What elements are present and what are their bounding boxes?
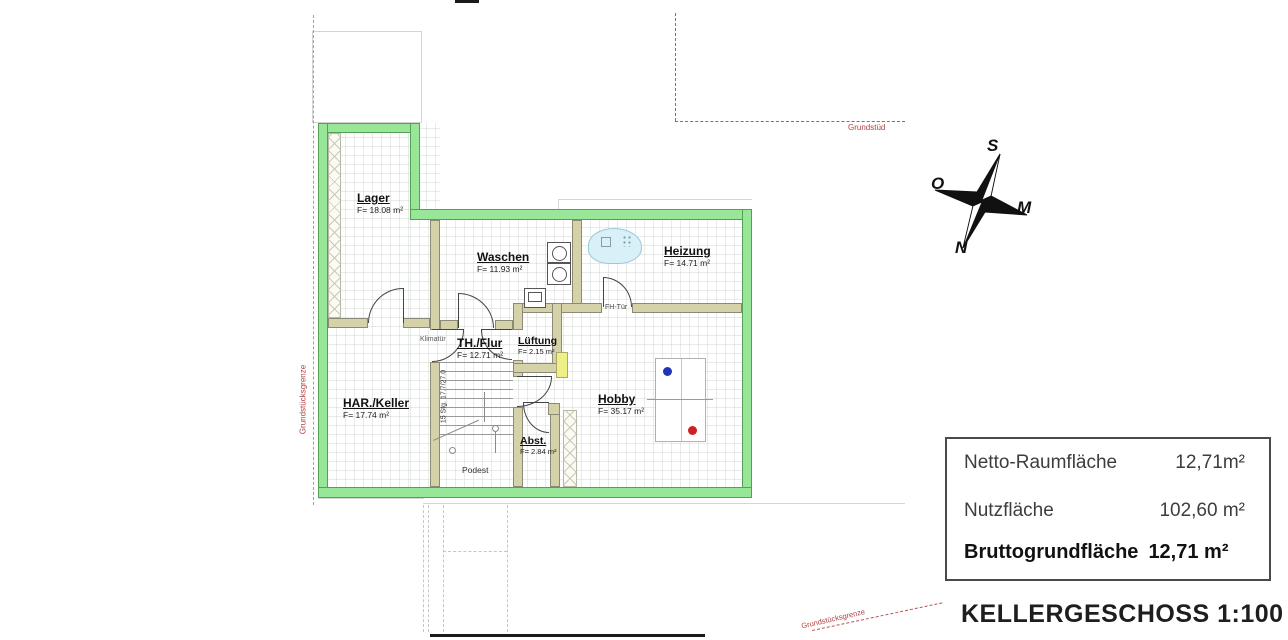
room-area: F= 17.74 m² [343, 410, 409, 420]
room-label-th-flur: TH./Flur F= 12.71 m² [457, 337, 503, 360]
wall-lueftung-bottom [513, 363, 562, 373]
room-label-har-keller: HAR./Keller F= 17.74 m² [343, 397, 409, 420]
room-area: F= 35.17 m² [598, 406, 644, 416]
boundary-label-topright: Grundstüd [848, 123, 885, 132]
podest-label: Podest [462, 465, 488, 475]
washing-machine-icon [547, 263, 571, 285]
compass-rose: S O M N [925, 140, 1045, 260]
outer-wall-step [410, 123, 420, 215]
room-area: F= 18.08 m² [357, 205, 403, 215]
room-name: TH./Flur [457, 337, 503, 350]
door-leaf-fh-tuer [603, 277, 604, 307]
property-boundary-topright-v [675, 13, 676, 121]
wall-heizung-bottom-2 [632, 303, 742, 313]
wall-waschen-heizung [572, 220, 582, 307]
vent-shaft-marker [556, 352, 568, 378]
stairs [440, 362, 513, 442]
legend-row-brutto: Bruttogrundfläche 12,71 m² [964, 541, 1245, 564]
door-leaf-lueftung [481, 329, 512, 330]
door-leaf-abst [523, 402, 549, 403]
wall-flur-lueftung [513, 303, 523, 330]
site-dashed-line [428, 505, 429, 632]
property-boundary-topright-h [675, 121, 905, 122]
wall-center-lower [430, 362, 440, 487]
table-dot-blue [663, 367, 672, 376]
legend-label: Netto-Raumfläche [964, 452, 1117, 474]
compass-label-south: S [987, 136, 998, 156]
drawing-title: KELLERGESCHOSS 1:100 [961, 600, 1284, 629]
cropped-top-mark [455, 0, 479, 3]
klimatuer-label: Klimatür [420, 336, 446, 343]
wall-center-upper [430, 220, 440, 330]
legend-value: 12,71 m² [1148, 541, 1228, 564]
stairs-arrow-line [495, 431, 496, 453]
room-name: Heizung [664, 245, 711, 258]
hatch-strip-lager [328, 133, 341, 318]
room-area: F= 11.93 m² [477, 264, 529, 274]
door-leaf-waschen [458, 293, 459, 328]
legend-row-netto: Netto-Raumfläche 12,71m² [964, 452, 1245, 474]
site-line [318, 498, 424, 499]
table-divider-line [681, 359, 682, 441]
compass-label-east: O [931, 174, 944, 194]
legend-label: Nutzfläche [964, 500, 1054, 522]
room-label-abst: Abst. F= 2.84 m² [520, 436, 556, 456]
stairs-arrow-line [484, 392, 485, 422]
cropped-bottom-line [430, 634, 705, 637]
fh-tuer-label: FH-Tür [605, 304, 627, 311]
wall-abst-top-stub [548, 403, 560, 415]
dryer-icon [547, 242, 571, 263]
dryer-drum-icon [552, 246, 567, 261]
site-dashed-line [507, 505, 508, 632]
room-name: Lüftung [518, 336, 557, 347]
washer-drum-icon [552, 267, 567, 282]
compass-label-north: N [955, 238, 967, 258]
upper-floor-line [558, 199, 752, 200]
room-name: Hobby [598, 393, 644, 406]
outer-wall-top-main [410, 209, 752, 220]
site-dashed-line [423, 505, 424, 632]
compass-label-west: M [1017, 198, 1031, 218]
wall-lager-har-1 [328, 318, 368, 328]
table-dot-red [688, 426, 697, 435]
site-dashed-line [443, 551, 507, 552]
heating-unit-box-icon [601, 237, 611, 247]
legend-row-nutzflaeche: Nutzfläche 102,60 m² [964, 500, 1245, 522]
site-dashed-line [443, 505, 444, 632]
room-label-lager: Lager F= 18.08 m² [357, 192, 403, 215]
room-label-waschen: Waschen F= 11.93 m² [477, 251, 529, 274]
room-name: Abst. [520, 436, 556, 447]
boundary-label-left: Grundstücksgrenze [299, 355, 308, 445]
room-area: F= 12.71 m² [457, 350, 503, 360]
stairs-arrow-start [449, 447, 456, 454]
door-leaf-lager [403, 288, 404, 323]
room-label-hobby: Hobby F= 35.17 m² [598, 393, 644, 416]
outer-wall-top-lager [318, 123, 420, 133]
upper-floor-outline [312, 31, 422, 123]
room-area: F= 2.15 m² [518, 347, 557, 356]
legend-label: Bruttogrundfläche [964, 541, 1138, 564]
outer-wall-left [318, 123, 328, 498]
heating-unit-icon [588, 228, 642, 264]
site-line [423, 503, 905, 504]
outer-wall-right [742, 209, 752, 498]
table-net-line [647, 399, 713, 400]
room-label-heizung: Heizung F= 14.71 m² [664, 245, 711, 268]
outer-wall-bottom [318, 487, 752, 498]
room-area: F= 2.84 m² [520, 447, 556, 456]
heating-unit-dots-icon [622, 235, 632, 247]
door-leaf-klimatuer [432, 329, 464, 330]
room-name: HAR./Keller [343, 397, 409, 410]
area-summary-box: Netto-Raumfläche 12,71m² Nutzfläche 102,… [945, 437, 1271, 581]
room-name: Waschen [477, 251, 529, 264]
hatch-strip-hobby [563, 410, 577, 487]
stairs-note: 15 Stg. 17.7/27.0 [441, 357, 448, 437]
sink-icon [524, 288, 546, 308]
sink-basin-icon [528, 292, 542, 302]
door-leaf-hobby [517, 376, 552, 377]
wall-lager-har-2 [403, 318, 430, 328]
legend-value: 102,60 m² [1159, 500, 1245, 522]
legend-value: 12,71m² [1175, 452, 1245, 474]
room-area: F= 14.71 m² [664, 258, 711, 268]
property-boundary-left [313, 15, 314, 505]
room-name: Lager [357, 192, 403, 205]
room-label-lueftung: Lüftung F= 2.15 m² [518, 336, 557, 356]
boundary-label-bottom: Grundstücksgrenze [800, 597, 911, 631]
